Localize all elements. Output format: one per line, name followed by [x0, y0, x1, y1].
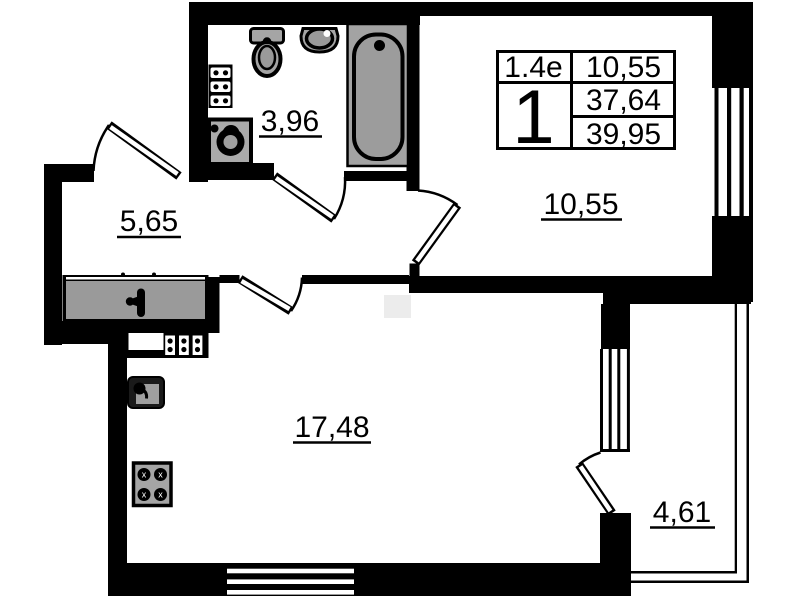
- svg-text:3,96: 3,96: [261, 105, 319, 138]
- svg-text:5,65: 5,65: [120, 205, 178, 238]
- svg-text:39,95: 39,95: [586, 118, 661, 151]
- svg-text:x: x: [158, 490, 163, 500]
- svg-text:10,55: 10,55: [543, 188, 618, 221]
- svg-text:37,64: 37,64: [586, 84, 661, 117]
- svg-text:x: x: [142, 470, 147, 480]
- svg-text:17,48: 17,48: [294, 411, 369, 444]
- svg-text:10,55: 10,55: [586, 51, 661, 84]
- svg-text:x: x: [142, 490, 147, 500]
- svg-text:4,61: 4,61: [653, 496, 711, 529]
- svg-text:1: 1: [512, 75, 554, 160]
- svg-text:x: x: [158, 470, 163, 480]
